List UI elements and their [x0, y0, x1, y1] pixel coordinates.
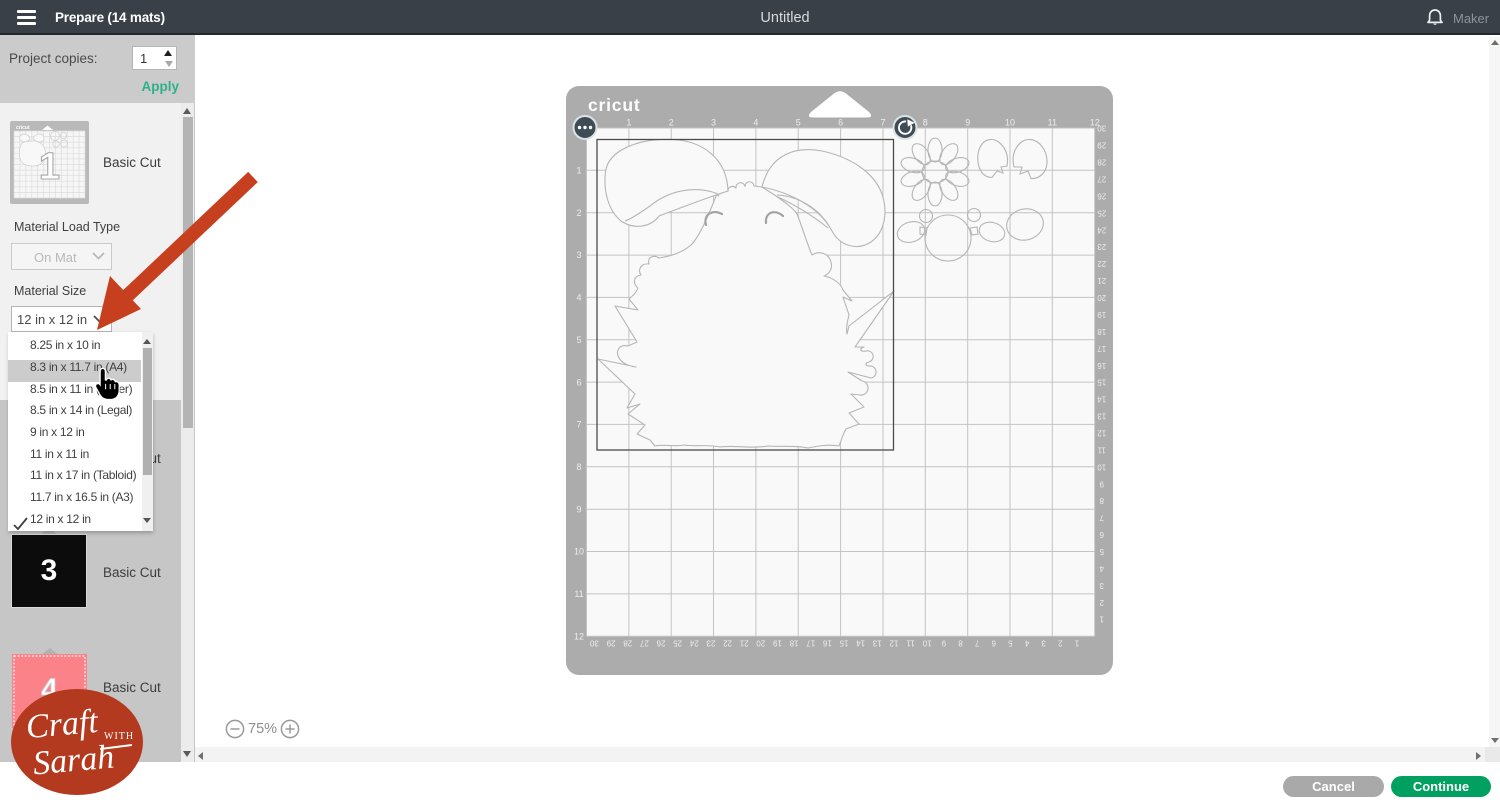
- svg-text:6: 6: [576, 377, 581, 387]
- svg-text:11: 11: [1097, 445, 1106, 454]
- svg-text:23: 23: [706, 639, 715, 648]
- svg-text:9: 9: [1099, 479, 1104, 488]
- svg-text:13: 13: [1097, 411, 1106, 420]
- svg-text:16: 16: [1097, 361, 1106, 370]
- svg-text:25: 25: [673, 639, 682, 648]
- svg-text:17: 17: [806, 639, 815, 648]
- svg-text:4: 4: [753, 118, 758, 128]
- svg-text:15: 15: [1097, 378, 1106, 387]
- svg-text:24: 24: [689, 639, 698, 648]
- svg-text:3: 3: [711, 118, 716, 128]
- svg-text:12: 12: [889, 639, 898, 648]
- svg-text:6: 6: [838, 118, 843, 128]
- svg-text:9: 9: [576, 504, 581, 514]
- svg-text:27: 27: [1097, 175, 1106, 184]
- svg-text:23: 23: [1097, 242, 1106, 251]
- svg-text:1: 1: [576, 166, 581, 176]
- svg-text:5: 5: [576, 335, 581, 345]
- svg-text:8: 8: [1099, 496, 1104, 505]
- svg-text:10: 10: [1005, 118, 1015, 128]
- svg-text:20: 20: [1097, 293, 1106, 302]
- svg-text:4: 4: [576, 293, 581, 303]
- svg-text:1: 1: [1099, 615, 1104, 624]
- svg-text:10: 10: [1097, 462, 1106, 471]
- svg-text:8: 8: [576, 462, 581, 472]
- svg-text:7: 7: [576, 420, 581, 430]
- svg-text:1: 1: [39, 146, 60, 188]
- svg-text:21: 21: [739, 639, 748, 648]
- svg-text:7: 7: [880, 118, 885, 128]
- svg-text:2: 2: [1058, 639, 1063, 648]
- svg-text:19: 19: [773, 639, 782, 648]
- svg-text:11: 11: [574, 589, 583, 599]
- svg-text:9: 9: [941, 639, 946, 648]
- svg-text:4: 4: [1024, 639, 1029, 648]
- svg-text:24: 24: [1097, 225, 1106, 234]
- svg-text:28: 28: [623, 639, 632, 648]
- svg-text:3: 3: [1041, 639, 1046, 648]
- svg-text:12: 12: [1097, 428, 1106, 437]
- svg-text:30: 30: [1097, 124, 1106, 133]
- svg-text:22: 22: [1097, 259, 1106, 268]
- svg-text:30: 30: [589, 639, 598, 648]
- svg-text:10: 10: [922, 639, 931, 648]
- svg-text:1: 1: [626, 118, 631, 128]
- svg-text:8: 8: [958, 639, 963, 648]
- svg-text:6: 6: [991, 639, 996, 648]
- svg-text:13: 13: [872, 639, 881, 648]
- svg-text:7: 7: [974, 639, 979, 648]
- svg-text:10: 10: [574, 547, 584, 557]
- svg-text:20: 20: [756, 639, 765, 648]
- svg-text:2: 2: [669, 118, 674, 128]
- svg-text:17: 17: [1097, 344, 1106, 353]
- svg-text:5: 5: [1099, 547, 1104, 556]
- svg-text:4: 4: [1099, 564, 1104, 573]
- svg-text:29: 29: [1097, 141, 1106, 150]
- svg-text:15: 15: [839, 639, 848, 648]
- svg-text:cricut: cricut: [16, 125, 30, 131]
- svg-text:cricut: cricut: [588, 95, 640, 115]
- svg-text:5: 5: [796, 118, 801, 128]
- svg-text:11: 11: [1048, 118, 1057, 128]
- svg-text:2: 2: [1099, 598, 1104, 607]
- svg-text:12: 12: [574, 631, 584, 641]
- svg-text:14: 14: [1097, 395, 1106, 404]
- svg-text:29: 29: [606, 639, 615, 648]
- svg-text:28: 28: [1097, 158, 1106, 167]
- svg-text:27: 27: [639, 639, 648, 648]
- svg-text:16: 16: [822, 639, 831, 648]
- svg-text:26: 26: [1097, 191, 1106, 200]
- svg-text:19: 19: [1097, 310, 1106, 319]
- svg-text:25: 25: [1097, 208, 1106, 217]
- svg-text:2: 2: [576, 208, 581, 218]
- svg-text:6: 6: [1099, 530, 1104, 539]
- svg-text:8: 8: [923, 118, 928, 128]
- svg-text:14: 14: [856, 639, 865, 648]
- svg-text:21: 21: [1097, 276, 1106, 285]
- svg-text:3: 3: [1099, 581, 1104, 590]
- svg-text:26: 26: [656, 639, 665, 648]
- svg-text:5: 5: [1008, 639, 1013, 648]
- svg-text:1: 1: [1074, 639, 1079, 648]
- svg-text:18: 18: [1097, 327, 1106, 336]
- svg-text:18: 18: [789, 639, 798, 648]
- svg-text:22: 22: [723, 639, 732, 648]
- svg-text:11: 11: [906, 639, 915, 648]
- svg-text:7: 7: [1099, 513, 1104, 522]
- svg-text:3: 3: [576, 250, 581, 260]
- svg-text:9: 9: [965, 118, 970, 128]
